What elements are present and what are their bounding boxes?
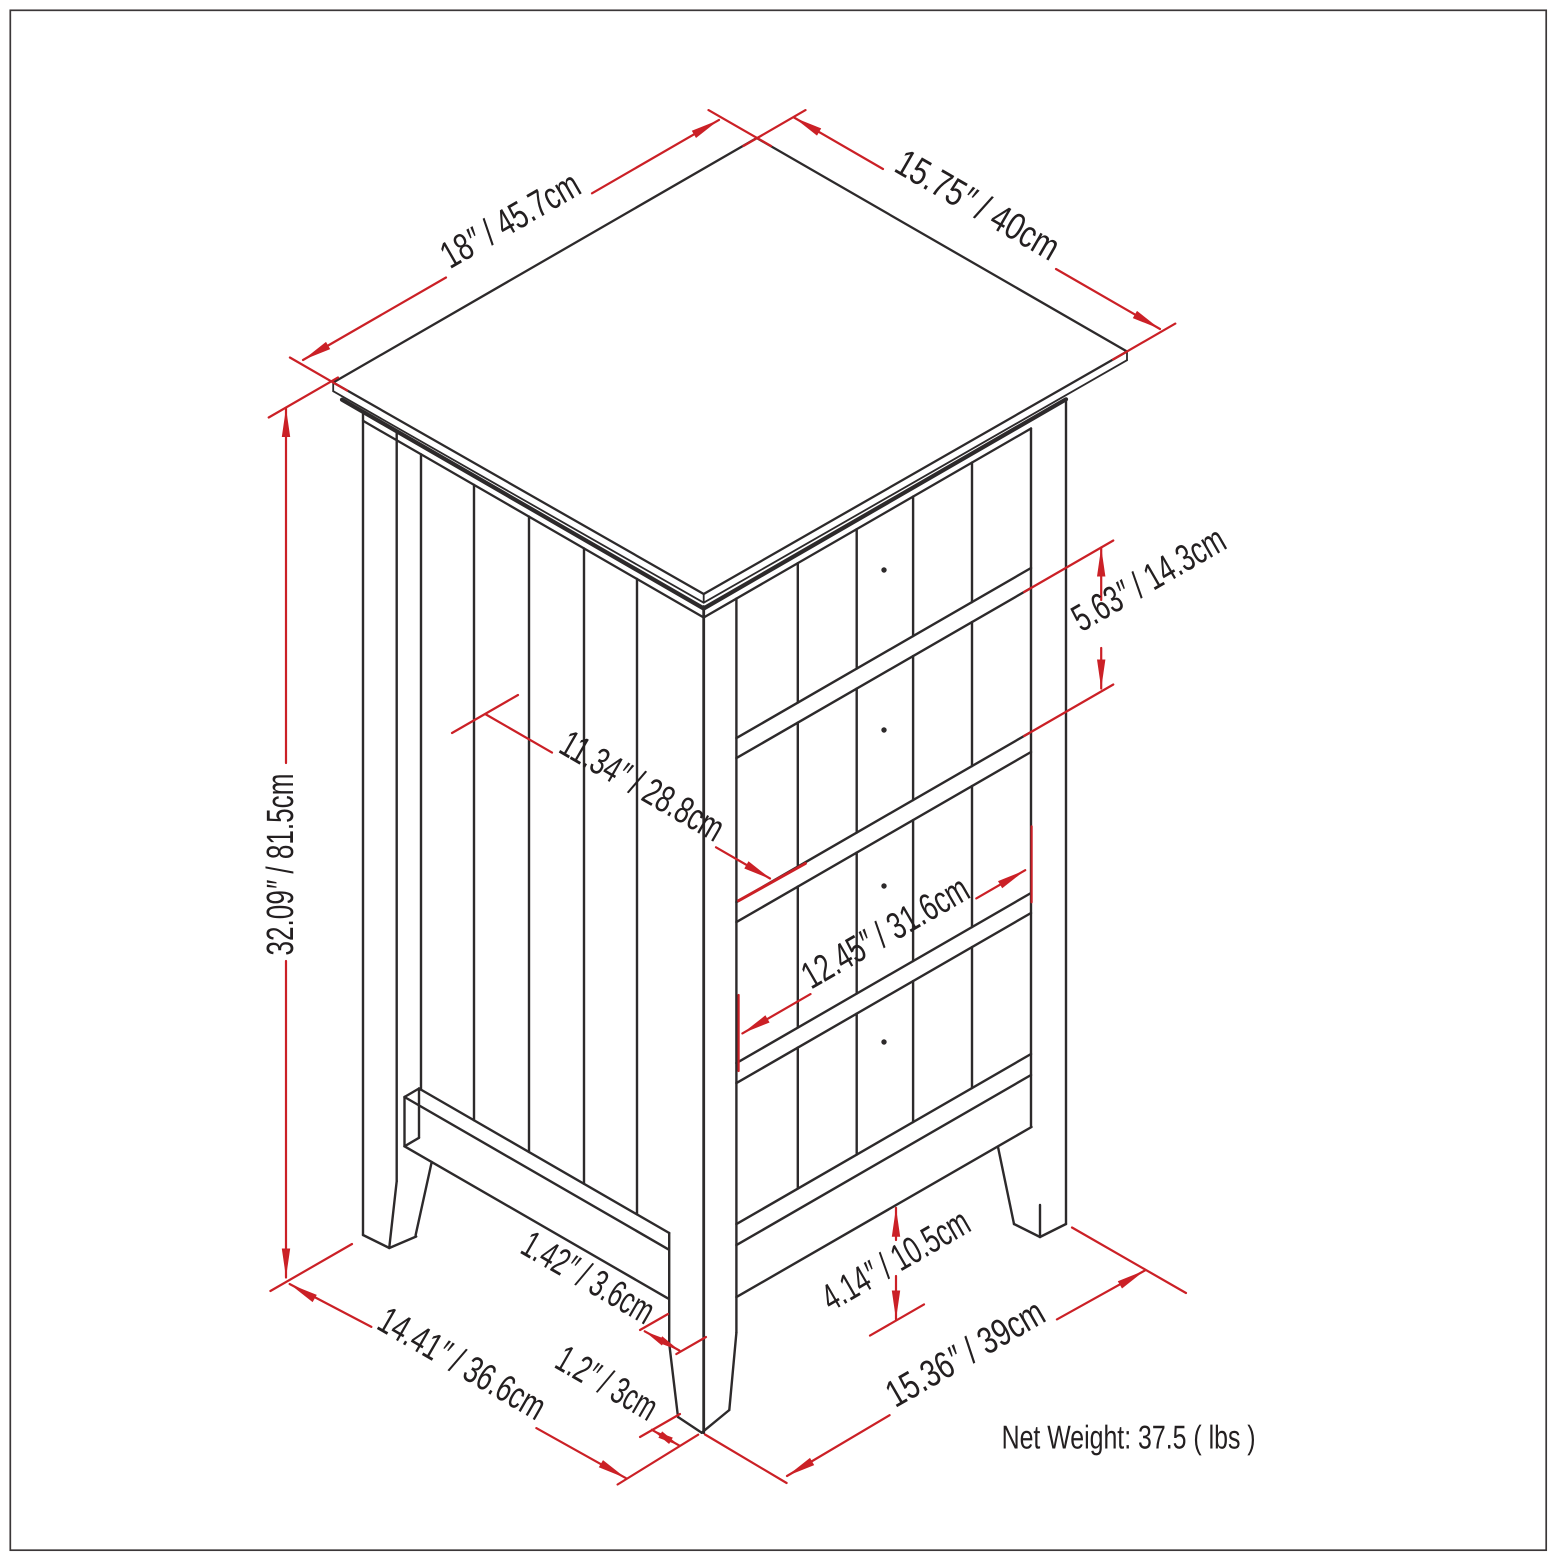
svg-text:32.09″ / 81.5cm: 32.09″ / 81.5cm xyxy=(260,774,302,956)
svg-text:Net Weight: 37.5 ( lbs ): Net Weight: 37.5 ( lbs ) xyxy=(1002,1419,1256,1456)
